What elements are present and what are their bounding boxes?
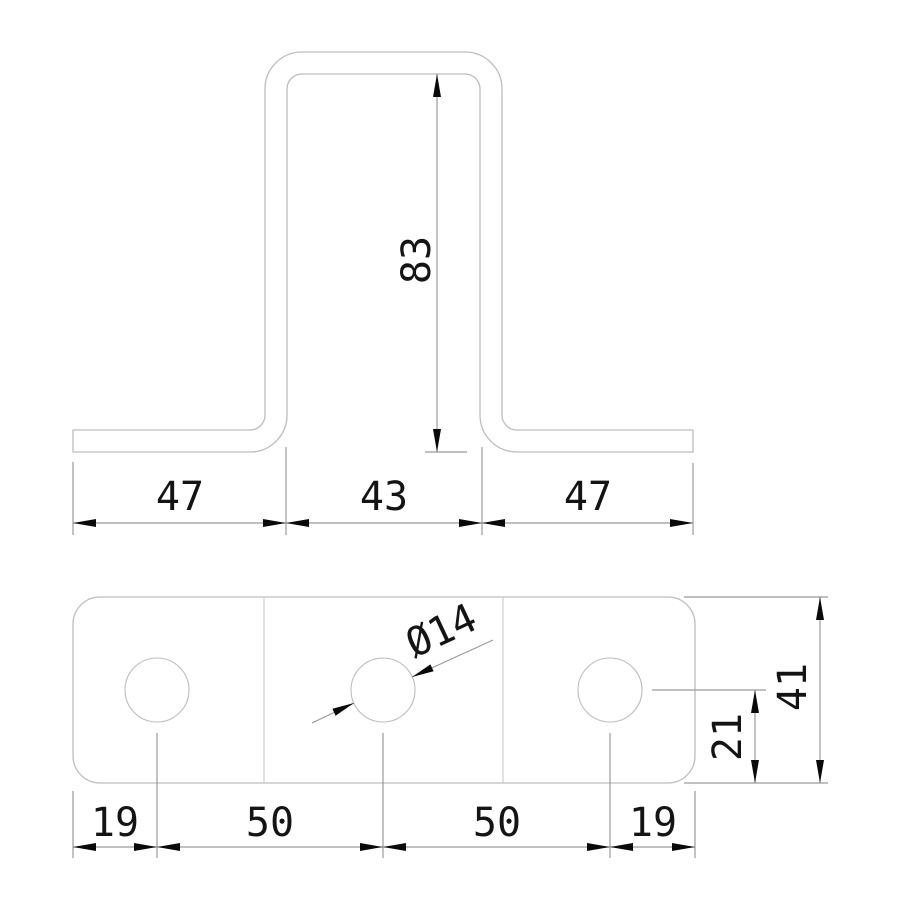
dim-height-83: 83 [394,74,467,452]
arrow-left-icon [157,843,180,851]
hat-profile-outline [73,52,693,452]
arrow-up-icon [816,597,824,620]
arrow-down-icon [433,429,441,452]
arrow-icon [412,664,434,677]
dim-label-height: 83 [394,236,440,284]
plan-view: Ø14 19 50 50 19 [73,595,828,858]
dim-label-right-flange: 47 [564,474,612,520]
arrow-up-icon [433,74,441,97]
arrow-left-icon [482,519,505,527]
arrow-left-icon [383,843,406,851]
drawing-sheet: 83 47 43 47 [0,0,908,908]
dim-label-hole-diameter: Ø14 [399,595,484,667]
arrow-icon [332,703,354,716]
dim-label-plate-width: 41 [770,663,816,711]
arrow-right-icon [670,519,693,527]
drawing-canvas: 83 47 43 47 [0,0,908,908]
front-view: 83 47 43 47 [73,52,693,535]
dim-label-hole-offset: 21 [705,713,751,761]
arrow-down-icon [816,760,824,783]
dim-label-edge-left: 19 [91,800,139,846]
arrow-left-icon [73,519,96,527]
dim-label-pitch-left: 50 [246,800,294,846]
arrow-right-icon [459,519,482,527]
dim-label-left-flange: 47 [156,474,204,520]
arrow-right-icon [263,519,286,527]
dim-label-web-width: 43 [360,474,408,520]
arrow-right-icon [360,843,383,851]
arrow-up-icon [751,690,759,713]
dim-hole-offset-21: 21 [652,690,766,783]
arrow-down-icon [751,760,759,783]
arrow-left-icon [286,519,309,527]
hole-left [125,658,189,722]
dim-hole-diameter: Ø14 [312,595,493,723]
arrow-right-icon [587,843,610,851]
hole-right [578,658,642,722]
dim-label-pitch-right: 50 [473,800,521,846]
plate-outline [73,597,695,783]
hole-middle [351,658,415,722]
dim-label-edge-right: 19 [629,800,677,846]
dim-row-47-43-47: 47 43 47 [73,447,693,535]
dim-row-19-50-50-19: 19 50 50 19 [73,733,695,858]
